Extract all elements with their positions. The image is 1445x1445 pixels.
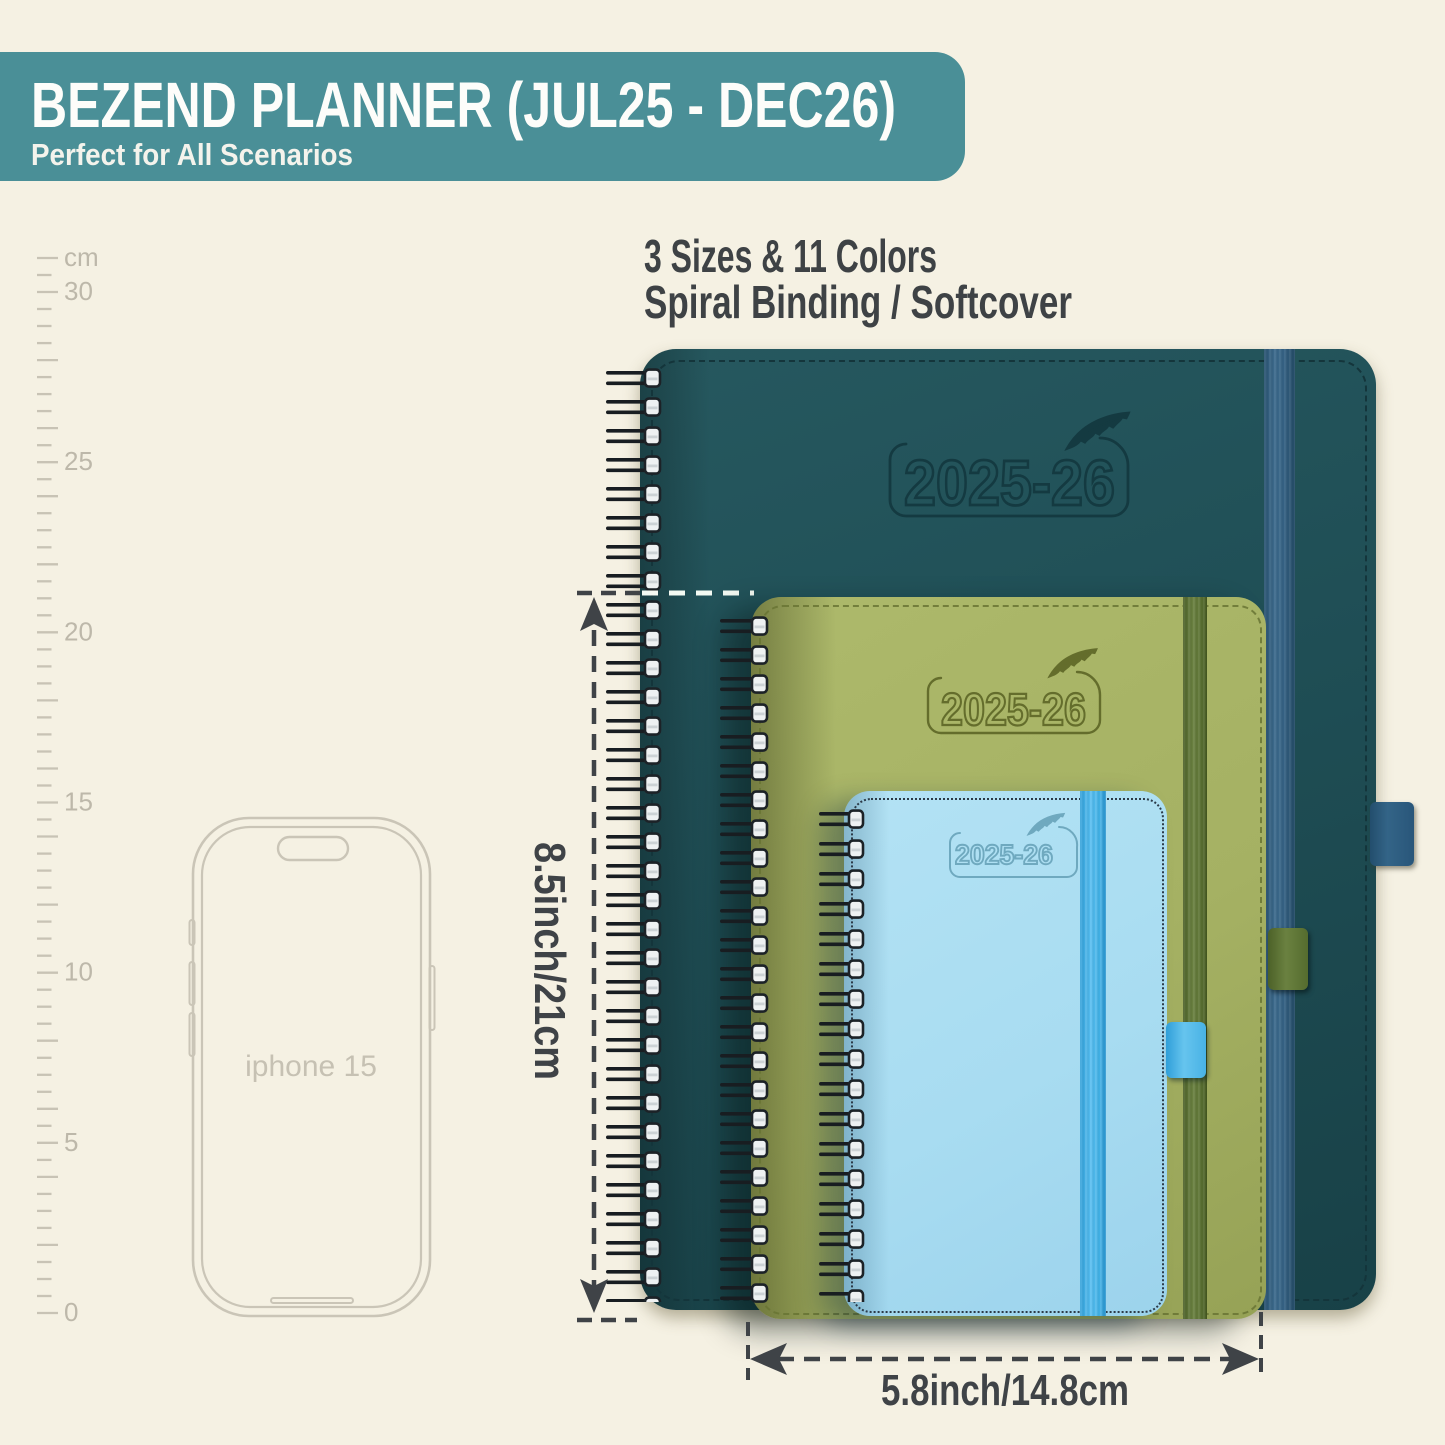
svg-text:20: 20 xyxy=(64,616,93,646)
svg-text:2025-26: 2025-26 xyxy=(955,839,1053,870)
svg-text:2025-26: 2025-26 xyxy=(904,447,1115,519)
svg-text:5.8inch/14.8cm: 5.8inch/14.8cm xyxy=(881,1366,1129,1415)
svg-text:2025-26: 2025-26 xyxy=(941,684,1086,735)
svg-text:3 Sizes & 11 Colors: 3 Sizes & 11 Colors xyxy=(644,230,937,282)
svg-text:cm: cm xyxy=(64,242,99,272)
svg-text:iphone 15: iphone 15 xyxy=(245,1050,377,1083)
svg-text:15: 15 xyxy=(64,787,93,817)
svg-text:BEZEND PLANNER (JUL25 - DEC26): BEZEND PLANNER (JUL25 - DEC26) xyxy=(31,69,896,141)
svg-text:30: 30 xyxy=(64,276,93,306)
svg-text:25: 25 xyxy=(64,446,93,476)
svg-text:Spiral Binding / Softcover: Spiral Binding / Softcover xyxy=(644,276,1072,328)
svg-text:Perfect for All Scenarios: Perfect for All Scenarios xyxy=(31,137,353,172)
svg-text:10: 10 xyxy=(64,957,93,987)
svg-text:5: 5 xyxy=(64,1127,78,1157)
svg-text:8.5inch/21cm: 8.5inch/21cm xyxy=(525,842,574,1080)
svg-text:0: 0 xyxy=(64,1297,78,1327)
